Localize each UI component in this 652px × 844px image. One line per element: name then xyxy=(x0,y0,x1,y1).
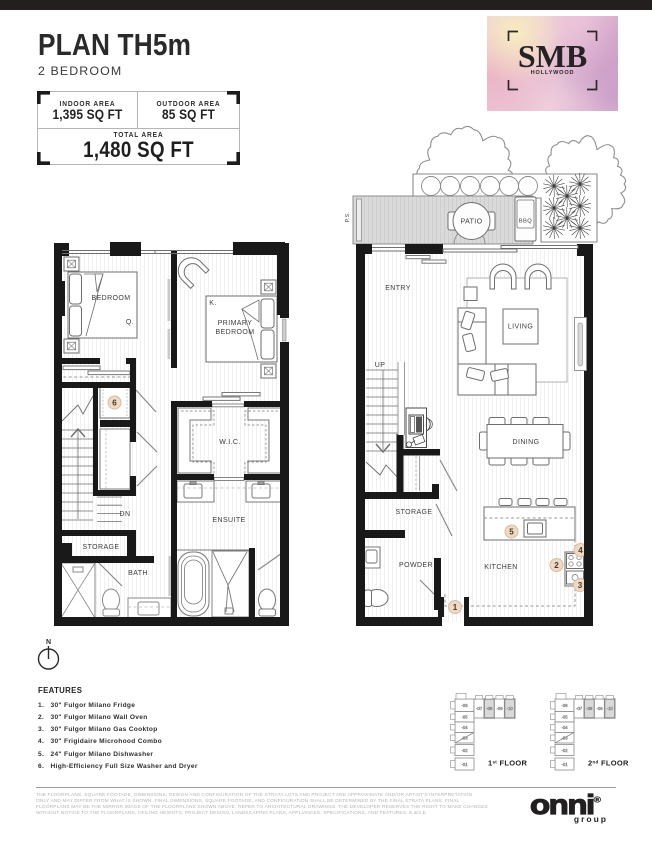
svg-text:-02: -02 xyxy=(561,748,568,753)
svg-text:Q.: Q. xyxy=(126,319,134,326)
svg-text:ENTRY: ENTRY xyxy=(385,285,411,292)
svg-text:PATIO: PATIO xyxy=(461,219,483,226)
svg-text:P.S.: P.S. xyxy=(345,212,351,222)
svg-text:1st FLOOR: 1st FLOOR xyxy=(488,759,528,768)
svg-text:N: N xyxy=(46,639,51,646)
svg-text:-04: -04 xyxy=(461,725,468,730)
svg-text:3: 3 xyxy=(578,581,583,590)
svg-text:LIVING: LIVING xyxy=(508,324,533,331)
svg-text:-08: -08 xyxy=(586,706,593,711)
svg-text:BEDROOM: BEDROOM xyxy=(92,295,131,302)
svg-text:DINING: DINING xyxy=(513,439,540,446)
svg-text:-06: -06 xyxy=(461,703,468,708)
svg-text:W.I.C.: W.I.C. xyxy=(219,439,240,446)
svg-text:-09: -09 xyxy=(596,706,603,711)
svg-text:BBQ: BBQ xyxy=(519,219,533,225)
svg-text:STORAGE: STORAGE xyxy=(396,509,433,516)
svg-text:2nd FLOOR: 2nd FLOOR xyxy=(588,759,629,768)
svg-text:-10: -10 xyxy=(607,706,614,711)
svg-text:ENSUITE: ENSUITE xyxy=(212,517,245,524)
svg-text:2: 2 xyxy=(554,561,559,570)
svg-text:K.: K. xyxy=(209,300,216,307)
svg-text:-01: -01 xyxy=(461,762,468,767)
svg-text:BEDROOM: BEDROOM xyxy=(216,329,255,336)
svg-text:-05: -05 xyxy=(561,715,568,720)
svg-text:-07: -07 xyxy=(576,706,583,711)
svg-text:5: 5 xyxy=(509,527,514,536)
svg-text:-01: -01 xyxy=(561,762,568,767)
svg-text:BATH: BATH xyxy=(128,570,148,577)
svg-text:-05: -05 xyxy=(461,715,468,720)
svg-text:DN: DN xyxy=(120,511,131,518)
svg-text:-09: -09 xyxy=(496,706,503,711)
svg-text:STORAGE: STORAGE xyxy=(83,544,120,551)
svg-text:1: 1 xyxy=(453,603,458,612)
svg-text:POWDER: POWDER xyxy=(399,562,433,569)
svg-text:-07: -07 xyxy=(476,706,483,711)
svg-text:UP: UP xyxy=(375,362,386,369)
svg-text:-02: -02 xyxy=(461,748,468,753)
svg-text:6: 6 xyxy=(112,398,117,407)
svg-text:PRIMARY: PRIMARY xyxy=(218,320,253,327)
svg-text:-04: -04 xyxy=(561,725,568,730)
svg-text:-10: -10 xyxy=(507,706,514,711)
svg-text:4: 4 xyxy=(578,546,583,555)
svg-text:-08: -08 xyxy=(486,706,493,711)
svg-text:-06: -06 xyxy=(561,703,568,708)
svg-text:KITCHEN: KITCHEN xyxy=(484,564,518,571)
